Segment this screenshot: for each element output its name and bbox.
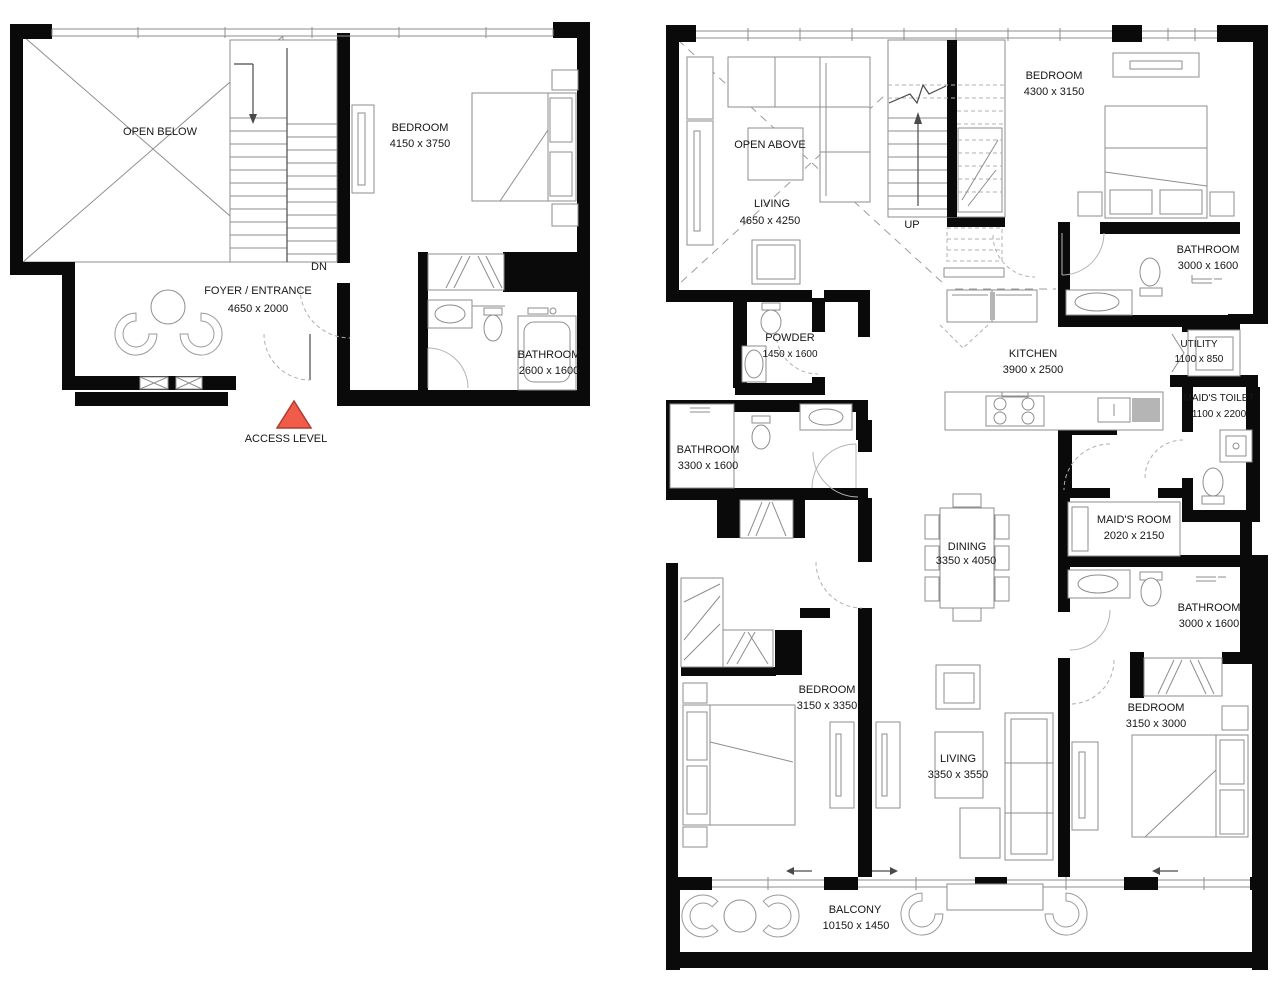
armchair-icon [936,665,980,709]
label-bedroom: BEDROOM [392,122,449,134]
slide-arrow-icon [786,867,1178,875]
toilet-icon [1141,578,1161,606]
balcony-furniture [682,884,1096,944]
closet [428,254,504,290]
label-living-upper: LIVING [754,198,790,210]
access-level-marker [277,401,311,428]
sofa-icon [1005,713,1053,860]
label-powder-dims: 1450 x 1600 [762,349,817,360]
plan-access-level: OPEN BELOW BEDROOM 4150 x 3750 DN FOYER … [10,22,590,445]
chair-icon [763,895,799,937]
understair-storage [944,228,1004,277]
label-open-above: OPEN ABOVE [734,139,806,151]
label-living-lower-dims: 3350 x 3550 [928,769,989,781]
chair-icon [106,309,161,364]
toilet-icon [761,310,781,334]
bedroom-top-furniture [1078,53,1234,218]
label-maids-toilet-dims: 1100 x 2200 [1192,409,1247,420]
wardrobe [1072,742,1098,830]
chair-icon [176,309,231,364]
table-icon [724,900,756,932]
label-bedroom-top: BEDROOM [1026,70,1083,82]
label-powder: POWDER [765,332,815,344]
label-up: UP [904,219,919,231]
living-upper-furniture [687,57,870,284]
wardrobe [352,105,374,193]
label-bedroom-top-dims: 4300 x 3150 [1024,86,1085,98]
label-dining-dims: 3350 x 4050 [936,555,997,567]
door-arc [812,444,856,488]
toilet-icon [484,308,502,315]
label-bathroom-dims: 2600 x 1600 [519,365,580,377]
bathtub-icon [1192,275,1222,283]
toilet-icon [752,425,770,449]
bathtub-icon [1196,577,1226,581]
table-icon [947,884,1043,910]
label-bedroom-dims: 4150 x 3750 [390,138,451,150]
label-utility: UTILITY [1180,339,1218,350]
chair-icon [892,889,947,944]
label-utility-dims: 1100 x 850 [1175,354,1224,365]
door-arc [428,348,468,388]
label-balcony-dims: 10150 x 1450 [823,920,890,932]
dresser-icon [1113,53,1199,77]
label-dn: DN [311,261,327,273]
chair-icon [682,895,718,937]
toilet-icon [1203,468,1223,496]
label-maids-toilet: MAID'S TOILET [1183,393,1254,404]
label-bathroom-left: BATHROOM [677,444,740,456]
closet [740,500,793,538]
floorplan-canvas: OPEN BELOW BEDROOM 4150 x 3750 DN FOYER … [0,0,1280,990]
chair-icon [1041,889,1096,944]
label-bathroom-right: BATHROOM [1178,602,1241,614]
stairs-down [230,40,337,262]
label-foyer: FOYER / ENTRANCE [204,285,312,297]
label-living-upper-dims: 4650 x 4250 [740,215,801,227]
label-foyer-dims: 4650 x 2000 [228,303,289,315]
label-dining: DINING [948,541,987,553]
bed [472,70,578,226]
label-bedroom-left-dims: 3150 x 3350 [797,700,858,712]
label-access-level: ACCESS LEVEL [245,433,328,445]
label-maids-room: MAID'S ROOM [1097,514,1171,526]
floorplan-svg: OPEN BELOW BEDROOM 4150 x 3750 DN FOYER … [0,0,1280,990]
closet [1144,658,1222,696]
label-bathroom: BATHROOM [518,349,581,361]
label-open-below: OPEN BELOW [123,126,198,138]
label-maids-room-dims: 2020 x 2150 [1104,530,1165,542]
utility-fixtures [1172,330,1240,376]
plan-upper-level: OPEN ABOVE LIVING 4650 x 4250 UP BEDROOM… [666,25,1268,970]
coffee-table-icon [748,128,803,180]
label-kitchen: KITCHEN [1009,348,1057,360]
door-arc [1145,440,1183,478]
window-band [52,27,553,38]
coffee-table-icon [935,732,983,798]
wardrobe [681,578,773,667]
label-bathroom-left-dims: 3300 x 1600 [678,460,739,472]
label-bedroom-left: BEDROOM [799,684,856,696]
label-bathroom-top: BATHROOM [1177,244,1240,256]
toilet-icon [1140,258,1160,286]
label-bathroom-top-dims: 3000 x 1600 [1178,260,1239,272]
label-living-lower: LIVING [940,753,976,765]
label-bedroom-right: BEDROOM [1128,702,1185,714]
label-balcony: BALCONY [829,904,882,916]
foyer-table [106,290,231,364]
stairs-up [888,40,1005,277]
bedroom-right-furniture [1072,658,1248,837]
shower-icon [1220,430,1252,462]
label-bedroom-right-dims: 3150 x 3000 [1126,718,1187,730]
label-kitchen-dims: 3900 x 2500 [1003,364,1064,376]
label-bathroom-right-dims: 3000 x 1600 [1179,618,1240,630]
